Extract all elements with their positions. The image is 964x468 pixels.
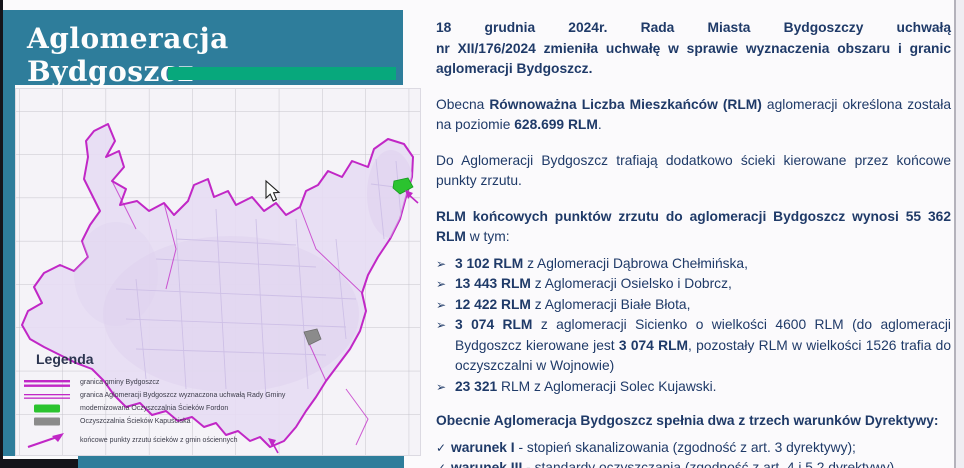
double-line-thick-icon (22, 378, 72, 388)
double-line-thin-icon (22, 391, 72, 401)
list-item: ➢13 443 RLM z Aglomeracji Osielsko i Dob… (436, 274, 951, 295)
rlm-bullet-list: ➢3 102 RLM z Aglomeracji Dąbrowa Chełmiń… (436, 254, 951, 398)
legend-item-punkty-zrzutu: końcowe punkty zrzutu ścieków z gmin ośc… (22, 428, 322, 452)
arrow-bullet-icon: ➢ (436, 377, 446, 398)
text-column: 18 grudnia 2024r. Rada Miasta Bydgoszczy… (436, 18, 951, 468)
paragraph-discharge-intro: Do Aglomeracji Bydgoszcz trafiają dodatk… (436, 151, 951, 192)
title-banner: Aglomeracja Bydgoszcz (3, 10, 403, 85)
banner-accent-bar (168, 67, 396, 80)
map-legend: Legenda granica gminy Bydgoszcz granica … (22, 351, 322, 452)
legend-item-fordon: modernizowana Oczyszczalnia Ścieków Ford… (22, 402, 322, 415)
paragraph-rlm-total: Obecna Równoważna Liczba Mieszkańców (RL… (436, 95, 951, 136)
legend-item-kapusciska: Oczyszczalnia Ścieków Kapuściska (22, 415, 322, 428)
magenta-arrow-icon (22, 429, 72, 451)
legend-item-granica-gminy: granica gminy Bydgoszcz (22, 376, 322, 389)
green-rect-icon (22, 403, 72, 414)
slide-root: Aglomeracja Bydgoszcz (0, 0, 964, 468)
list-item: ➢23 321 RLM z Aglomeracji Solec Kujawski… (436, 377, 951, 398)
check-icon: ✓ (436, 458, 446, 468)
gray-rect-icon (22, 416, 72, 427)
arrow-bullet-icon: ➢ (436, 315, 446, 336)
list-item: ➢3 102 RLM z Aglomeracji Dąbrowa Chełmiń… (436, 254, 951, 275)
paragraph-resolution: 18 grudnia 2024r. Rada Miasta Bydgoszczy… (436, 18, 951, 80)
paragraph-directive: Obecnie Aglomeracja Bydgoszcz spełnia dw… (436, 411, 951, 432)
check-icon: ✓ (436, 438, 446, 459)
legend-item-granica-aglomeracji: granica Aglomeracji Bydgoszcz wyznaczona… (22, 389, 322, 402)
map-panel: Legenda granica gminy Bydgoszcz granica … (15, 88, 421, 456)
list-item: ➢12 422 RLM z Aglomeracji Białe Błota, (436, 295, 951, 316)
paragraph-discharge-rlm: RLM końcowych punktów zrzutu do aglomera… (436, 207, 951, 248)
legend-title: Legenda (36, 351, 322, 367)
condition-row: ✓ warunek III - standardy oczyszczania (… (436, 458, 951, 468)
arrow-bullet-icon: ➢ (436, 254, 446, 275)
bottom-teal-bar (78, 456, 404, 468)
right-margin-strip (956, 0, 964, 468)
arrow-bullet-icon: ➢ (436, 295, 446, 316)
arrow-bullet-icon: ➢ (436, 274, 446, 295)
condition-row: ✓ warunek I - stopień skanalizowania (zg… (436, 438, 951, 459)
list-item: ➢3 074 RLM z aglomeracji Sicienko o wiel… (436, 315, 951, 377)
